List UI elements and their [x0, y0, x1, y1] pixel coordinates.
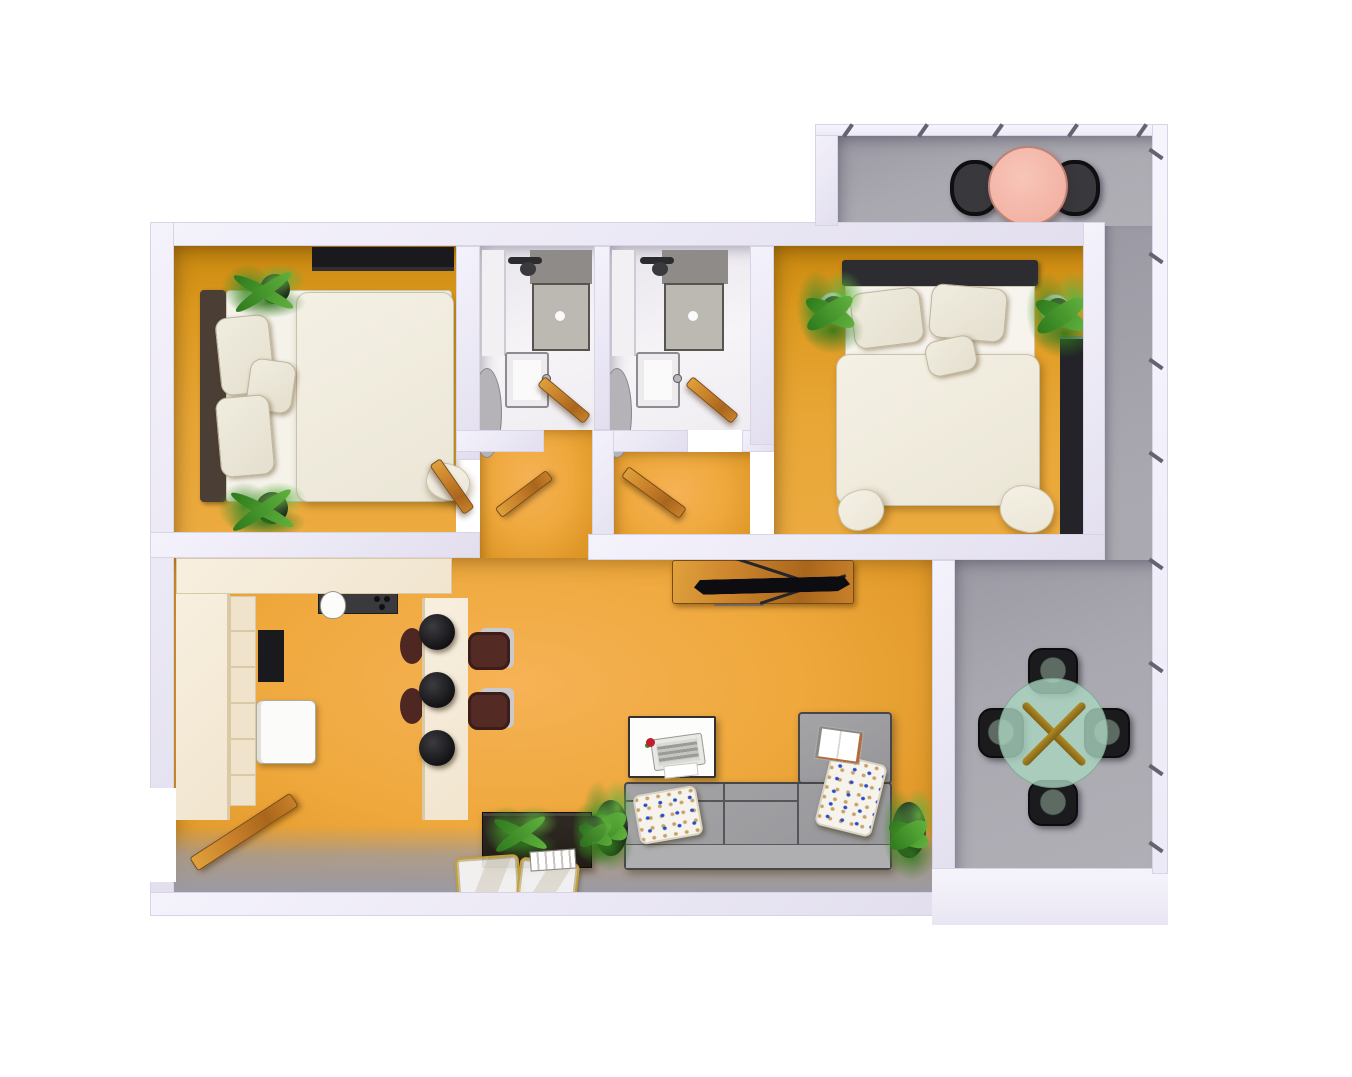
bar-stool: [419, 672, 455, 708]
sofa-front-edge: [626, 844, 890, 868]
bottle-plant: [572, 802, 618, 866]
pink-table: [988, 146, 1068, 226]
shower-drain: [555, 311, 565, 321]
bed-duvet: [836, 354, 1040, 506]
wall-bedroom1-right: [456, 246, 480, 460]
built-in-oven: [258, 630, 284, 682]
terrace: [955, 560, 1152, 868]
wall-bottom: [150, 892, 950, 916]
bar-stool: [419, 614, 455, 650]
kitchen-upper-cabinets: [176, 558, 452, 594]
bed-pillow: [928, 283, 1008, 343]
kitchen-tall-cabinet: [176, 594, 230, 820]
maroon-chair: [468, 632, 510, 670]
wall-bathrooms-bottom: [456, 430, 544, 452]
sink-faucet: [673, 374, 682, 383]
wall-terrace-left: [932, 560, 955, 892]
entry-doorway: [148, 788, 176, 882]
shower-drain: [688, 311, 698, 321]
kitchen-shelf-column: [230, 596, 256, 806]
book-stack: [529, 848, 576, 871]
shower-head-icon: [520, 262, 536, 276]
glass-table: [998, 678, 1108, 788]
plant: [222, 264, 306, 318]
wall-balcony-left: [815, 125, 838, 226]
kitchen-sink: [320, 591, 346, 619]
bedroom2: [774, 246, 1083, 534]
cooktop-burner-icon: [384, 596, 390, 602]
flower: [646, 738, 655, 747]
wall-bedroom1-bottom: [150, 532, 480, 558]
bathroom1: [480, 246, 594, 430]
maroon-chair: [468, 692, 510, 730]
bookshelf: [1060, 336, 1084, 546]
cooktop-burner-icon: [379, 604, 385, 610]
wall-bathroom-divider: [594, 246, 610, 430]
terrace-bottom-platform: [932, 868, 1168, 925]
bar-stool: [419, 730, 455, 766]
plant: [796, 270, 864, 354]
balcony-right-railing: [1152, 124, 1168, 874]
balcony-top: [838, 136, 1152, 226]
plant: [218, 482, 306, 538]
bath-cabinet: [482, 250, 506, 356]
wall-living-top: [588, 534, 1105, 560]
open-magazine: [814, 725, 864, 765]
bedroom1: [174, 246, 456, 534]
cooktop-burner-icon: [374, 596, 380, 602]
sofa-seam: [723, 784, 725, 844]
bed-pillow: [215, 394, 276, 478]
bath-cabinet: [612, 250, 636, 356]
fridge: [256, 700, 316, 764]
bathroom2-door: [685, 376, 739, 424]
shower-back-wall: [662, 250, 728, 284]
kitchen-living: [174, 558, 932, 892]
sofa-seam: [797, 784, 799, 844]
shower-head-icon: [652, 262, 668, 276]
wardrobe: [312, 247, 454, 271]
bed-headboard: [842, 260, 1038, 286]
plant: [882, 788, 936, 880]
floor-plan-scene: [0, 0, 1352, 1077]
shower-back-wall: [530, 250, 592, 284]
wall-bedroom2-left: [750, 246, 774, 445]
wall-top: [150, 222, 1105, 246]
wall-right-main: [1083, 222, 1105, 560]
bathroom2: [610, 246, 750, 430]
